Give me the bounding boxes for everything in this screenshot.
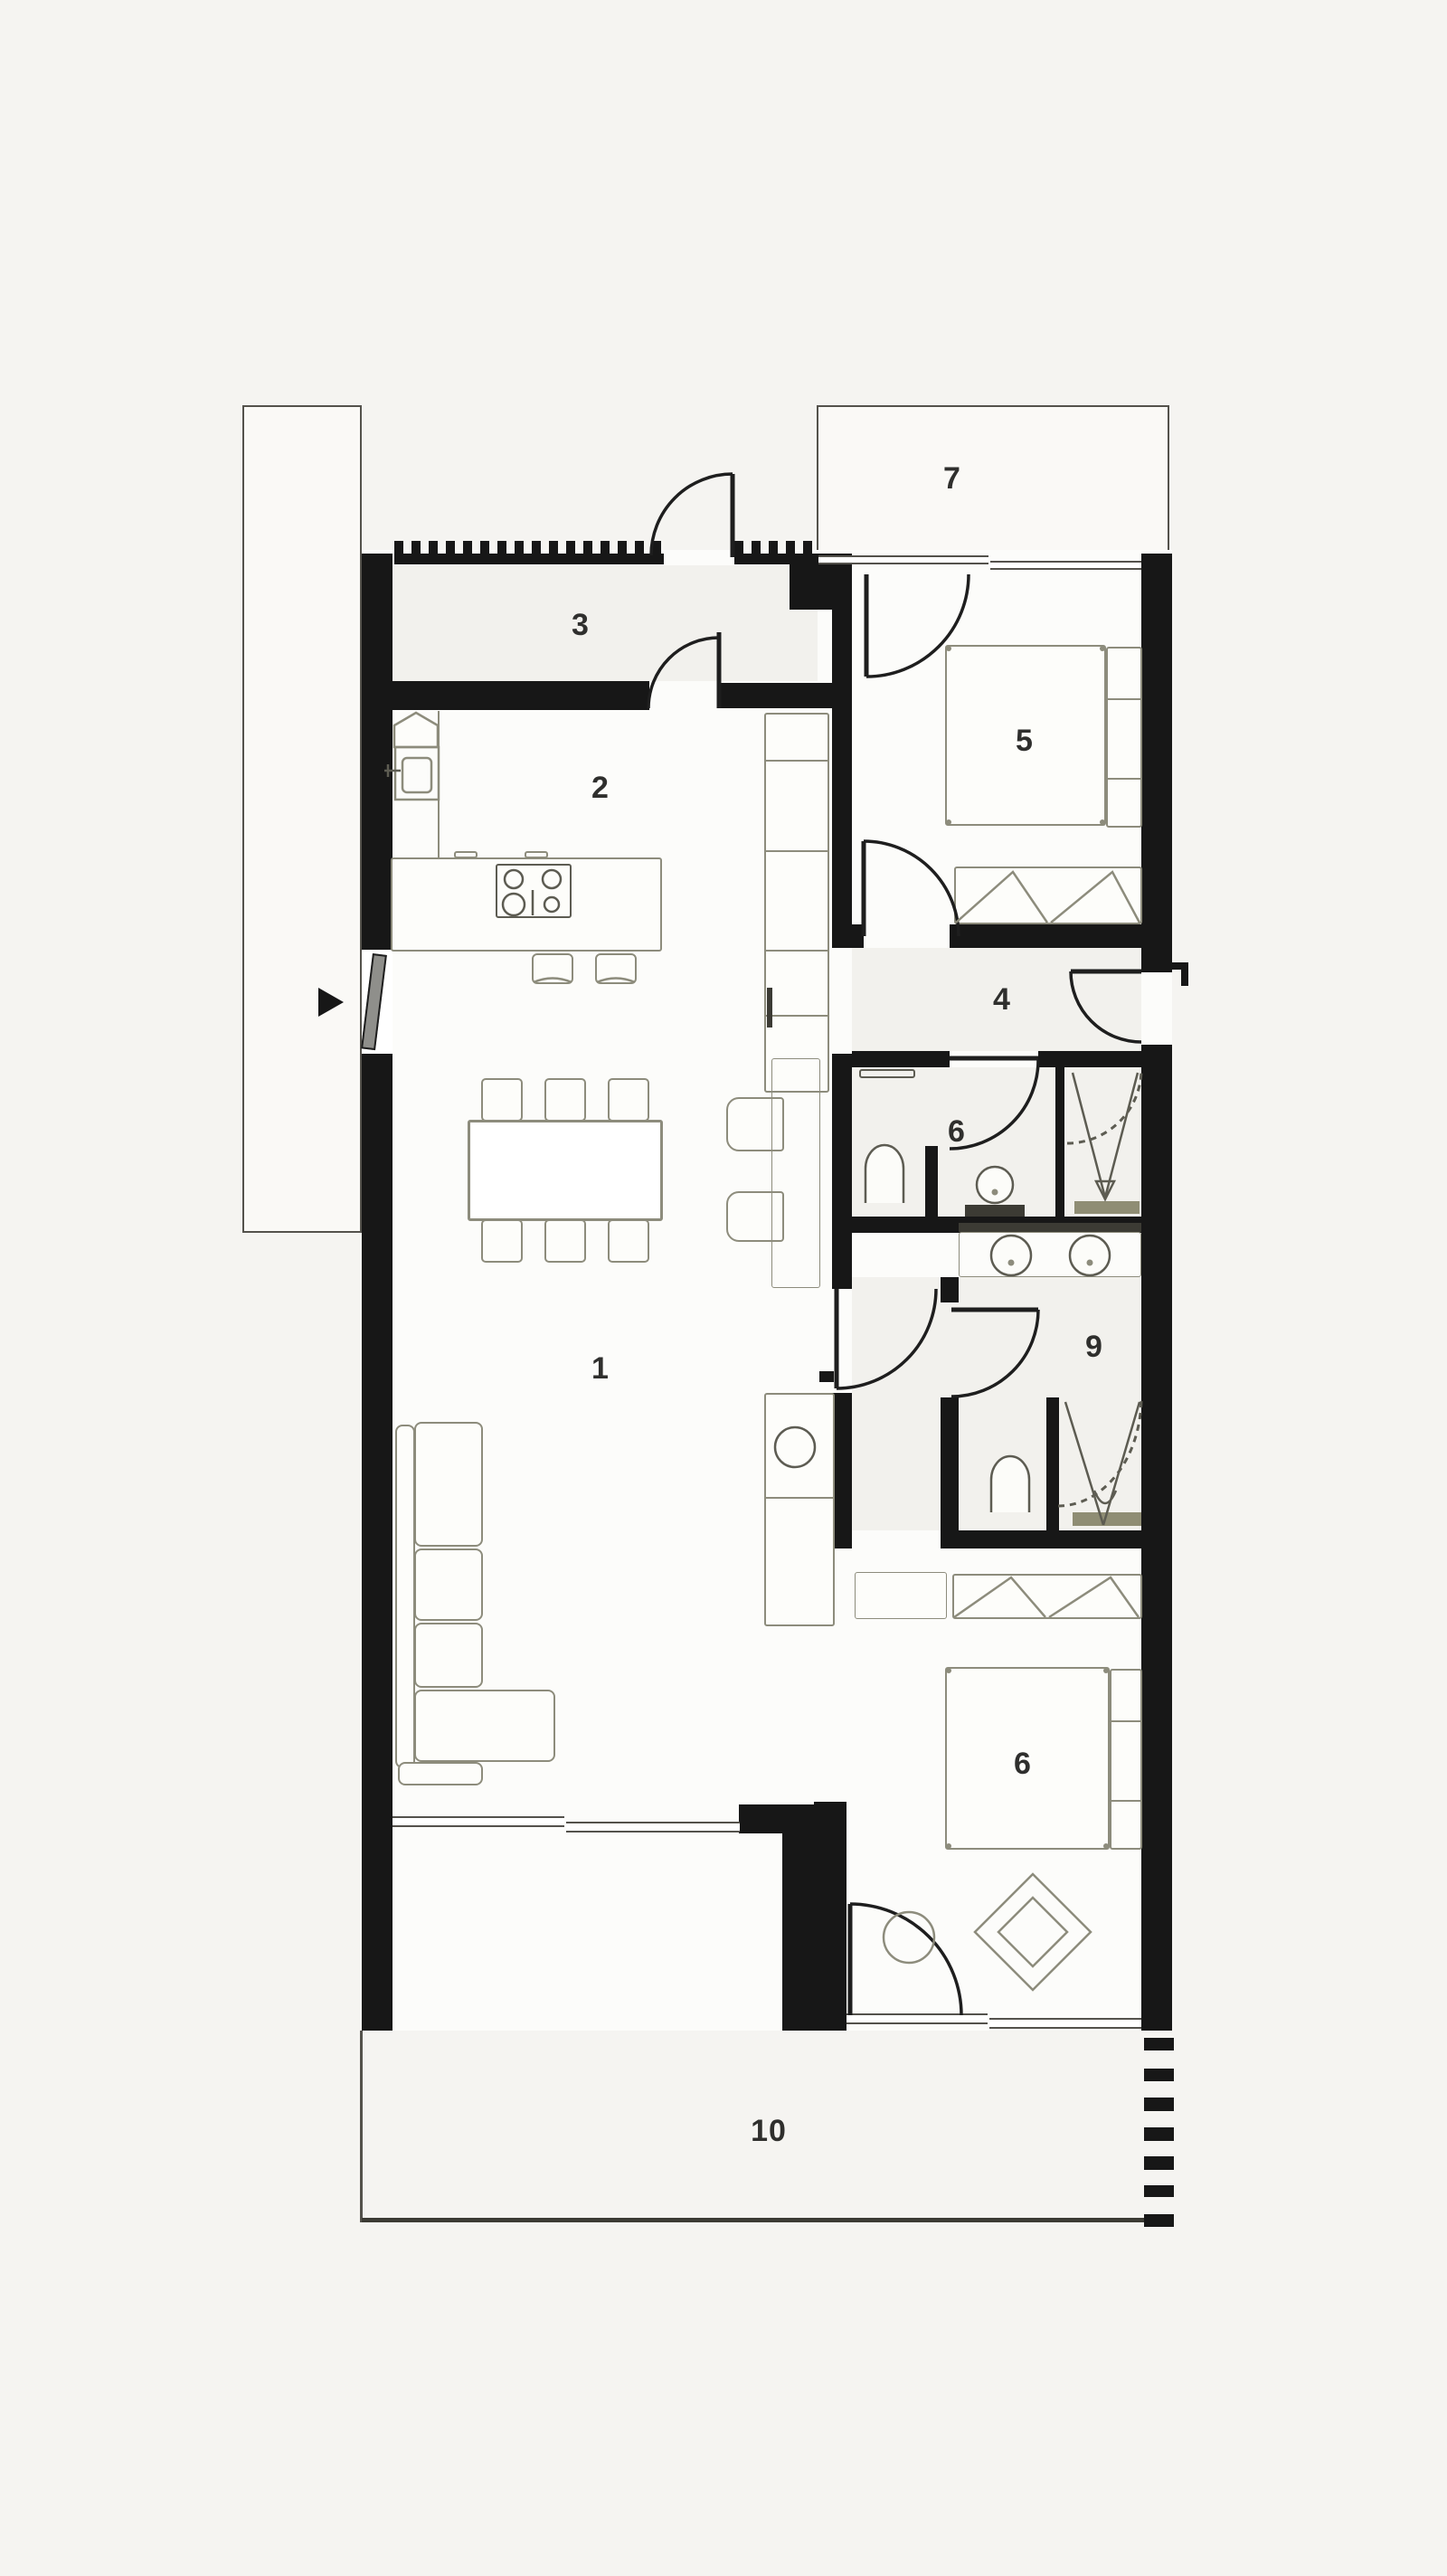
- room-label-balcony: 7: [925, 461, 979, 497]
- bar-stool: [532, 953, 573, 984]
- side-yard-outline: [242, 405, 362, 1233]
- wall-bath9-left-a: [941, 1277, 959, 1302]
- room-label-living: 1: [573, 1351, 628, 1387]
- vanity9-counter: [959, 1232, 1141, 1277]
- hatch-dash: [1144, 2127, 1174, 2141]
- dining-chair: [481, 1078, 523, 1122]
- wall-bath6-wc-partition: [925, 1146, 938, 1217]
- wall-hall-top-b: [950, 924, 1141, 948]
- hatch-dash: [1144, 2185, 1174, 2197]
- vanity9-backsplash: [959, 1223, 1141, 1232]
- wall-hall-top-a: [852, 924, 864, 948]
- wall-central-1: [832, 554, 852, 948]
- window-living-b: [566, 1822, 740, 1833]
- headboard-divider: [1108, 778, 1140, 780]
- wall-bath9-bottom: [941, 1530, 1141, 1548]
- console-strip: [771, 1058, 820, 1288]
- wall-left-lower: [362, 1054, 392, 2031]
- oven-handle: [767, 988, 772, 1028]
- dresser-lower: [855, 1572, 947, 1619]
- sofa-back-cushions: [395, 1425, 415, 1768]
- wall-hall-bottom-b: [1038, 1051, 1141, 1067]
- vanity6-base: [965, 1205, 1025, 1217]
- dining-chair: [544, 1078, 586, 1122]
- terrace-left-line: [360, 2031, 363, 2222]
- hatched-wall-right: [734, 541, 818, 554]
- hatched-wall-left-base: [394, 554, 664, 564]
- kitchen-counter-edge: [438, 711, 440, 859]
- living-cabinet-divider: [766, 1497, 833, 1499]
- hatch-dash: [1144, 2038, 1174, 2050]
- dining-chair: [608, 1078, 649, 1122]
- wall-bath9-left-b: [941, 1397, 959, 1547]
- island-tick-2: [525, 851, 548, 858]
- room-label-hallway: 4: [975, 982, 1029, 1018]
- kitchen-tall-units: [764, 713, 829, 1093]
- wall-living-se-a: [739, 1804, 815, 1833]
- room-label-bedroom-lower: 6: [996, 1747, 1050, 1782]
- balcony-outline: [817, 405, 1169, 554]
- room-label-terrace: 10: [742, 2114, 796, 2149]
- kitchen-unit-divider: [766, 760, 828, 762]
- wall-living-se-b: [782, 1832, 815, 2031]
- dining-chair: [608, 1219, 649, 1263]
- wall-bedroom-west: [814, 1802, 846, 2031]
- shower6-bench: [1074, 1201, 1140, 1214]
- hatch-dash: [1144, 2214, 1174, 2227]
- hatched-wall-left: [394, 541, 664, 554]
- window-living-a: [392, 1816, 564, 1827]
- sofa-seat: [414, 1623, 483, 1688]
- dining-chair: [544, 1219, 586, 1263]
- cooktop: [496, 864, 572, 918]
- headboard-divider: [1111, 1800, 1140, 1802]
- sofa-end: [398, 1762, 483, 1785]
- wall-shower6-partition: [1055, 1067, 1064, 1217]
- kitchen-unit-divider: [766, 950, 828, 952]
- wall-central-3: [832, 1393, 852, 1548]
- wall-shower9-partition: [1046, 1397, 1059, 1538]
- kitchen-unit-divider: [766, 1015, 828, 1017]
- bed-lower-headboard: [1110, 1669, 1142, 1850]
- wall-right-lower: [1141, 1045, 1172, 2031]
- bar-stool: [595, 953, 637, 984]
- hatch-dash: [1144, 2156, 1174, 2170]
- floor-plan: 1 2 3 4 5 6 7 6 9 10: [0, 0, 1447, 2576]
- sofa-chaise: [414, 1690, 555, 1762]
- bed-upper-headboard: [1106, 647, 1142, 828]
- wall-entry-band-right: [720, 683, 836, 708]
- kitchen-unit-divider: [766, 850, 828, 852]
- dining-table: [468, 1120, 663, 1221]
- towel-rail: [859, 1069, 915, 1078]
- bathroom-upper-floor: [852, 1067, 1141, 1217]
- wall-right-door-bracket2: [1181, 962, 1188, 986]
- window-bedroom-upper-a: [818, 555, 988, 564]
- room-label-bedroom-upper: 5: [998, 724, 1052, 759]
- wall-right-upper: [1141, 554, 1172, 972]
- window-bedroom-lower-a: [846, 2013, 988, 2024]
- room-label-bathroom-upper: 6: [930, 1114, 984, 1150]
- wardrobe-lower: [952, 1574, 1142, 1619]
- wall-left-upper: [362, 554, 392, 950]
- island-tick-1: [454, 851, 478, 858]
- window-bedroom-lower-b: [989, 2018, 1141, 2029]
- wall-central-2: [832, 1054, 852, 1289]
- door-stop-central: [819, 1371, 834, 1382]
- hatch-dash: [1144, 2069, 1174, 2081]
- hatch-dash: [1144, 2098, 1174, 2111]
- sofa-seat: [414, 1548, 483, 1621]
- bathroom-lower-floor: [852, 1277, 1141, 1530]
- headboard-divider: [1111, 1720, 1140, 1722]
- room-label-kitchen: 2: [573, 771, 628, 806]
- room-label-bathroom-lower: 9: [1067, 1330, 1121, 1365]
- dining-chair: [481, 1219, 523, 1263]
- window-bedroom-upper-b: [990, 561, 1141, 570]
- terrace-bottom-line: [362, 2218, 1147, 2222]
- living-cabinet: [764, 1393, 835, 1626]
- wall-entry-band-left: [362, 681, 649, 710]
- headboard-divider: [1108, 698, 1140, 700]
- room-label-entry: 3: [553, 608, 608, 643]
- wardrobe-upper: [954, 867, 1142, 924]
- wall-hall-bottom-a: [852, 1051, 950, 1067]
- shower9-bench: [1073, 1512, 1141, 1526]
- sofa-seat: [414, 1422, 483, 1547]
